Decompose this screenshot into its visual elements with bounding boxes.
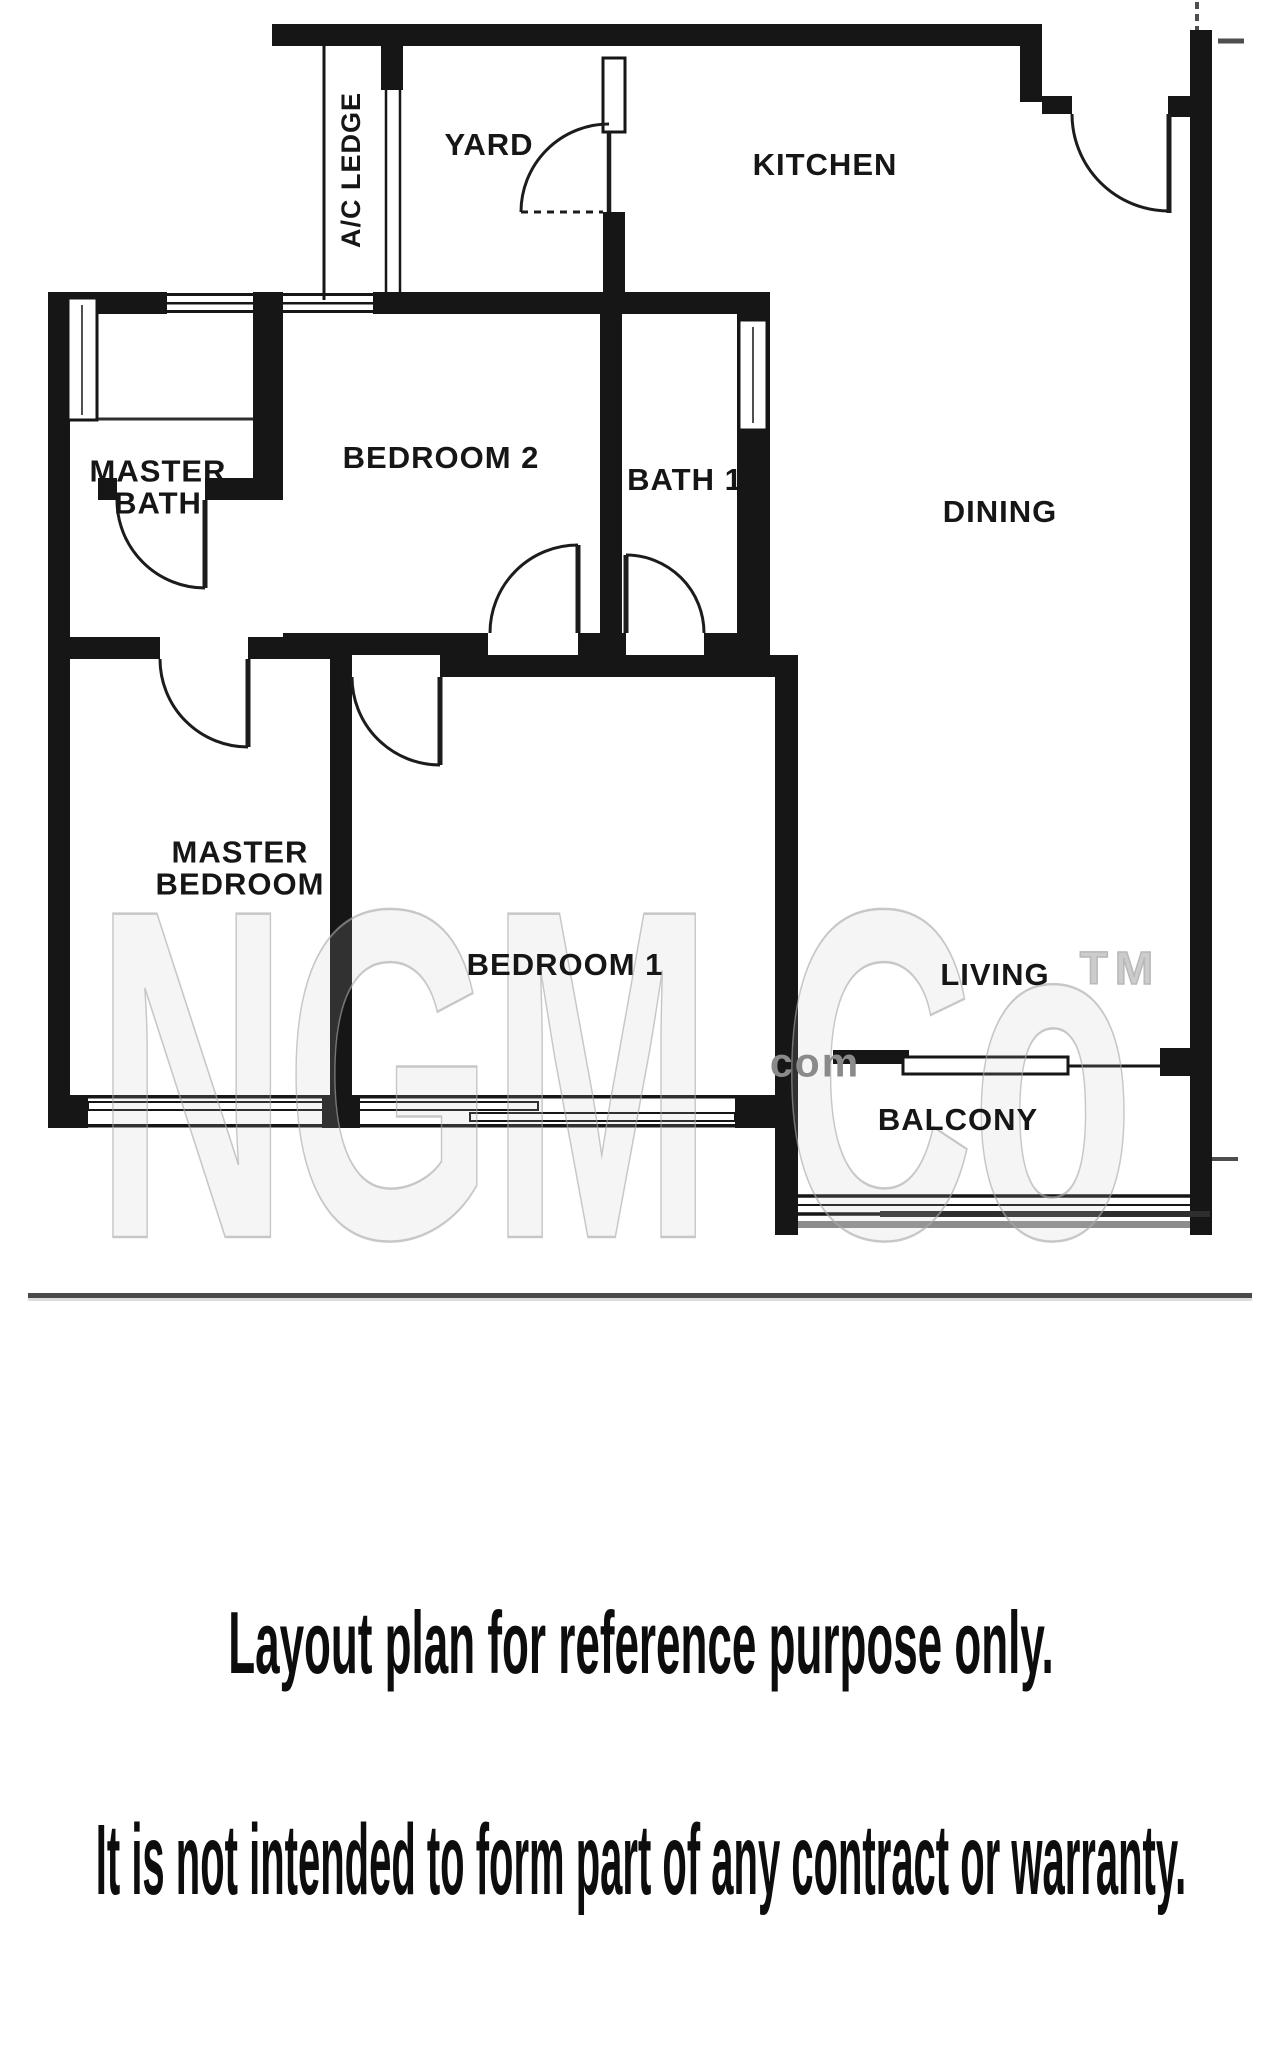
door-master-bedroom-arc [160,659,248,747]
door-master-bedroom [160,659,248,747]
wall-bedroom1-top [440,655,775,677]
disclaimer-line-1: Layout plan for reference purpose only. [228,1599,1054,1687]
door-yard [521,58,625,212]
watermark-trademark: TM [1080,941,1160,995]
door-yard-jamb [603,58,625,132]
window-master-bath [68,298,97,420]
wall-entry-jamb-right [1168,96,1190,117]
watermark-brand: NGM Co [95,840,1131,1310]
wall-top [272,24,1042,46]
wall-entry-jamb-left [1042,96,1072,114]
door-master-bath-arc [117,500,205,588]
door-entry [1072,114,1169,213]
door-bedroom1 [352,677,440,765]
separator-line [28,1293,1252,1298]
door-bedroom1-arc [352,677,440,765]
door-bath1 [626,555,704,633]
door-bedroom2-arc [490,545,578,633]
wall-right [1190,30,1212,1235]
door-yard-arc [521,124,609,212]
door-bath1-arc [626,555,704,633]
window-bath1 [739,320,767,430]
watermark-com-suffix: com [770,1040,860,1087]
wall-ac-ledge-stub [381,46,403,90]
wall-entry-stub [1020,46,1042,102]
wall-yard-right [603,212,625,314]
door-entry-arc [1072,114,1169,211]
wall-masterbath-divider [253,292,283,500]
door-bedroom2 [490,545,578,633]
scanned-floor-plan-page: NGM Co com TM A/C LEDGE YARD KITCHEN MAS… [0,0,1281,2048]
wall-bedroom2-bath1-divider [600,314,622,655]
door-master-bath [117,500,205,588]
disclaimer-line-2: It is not intended to form part of any c… [95,1810,1185,1910]
